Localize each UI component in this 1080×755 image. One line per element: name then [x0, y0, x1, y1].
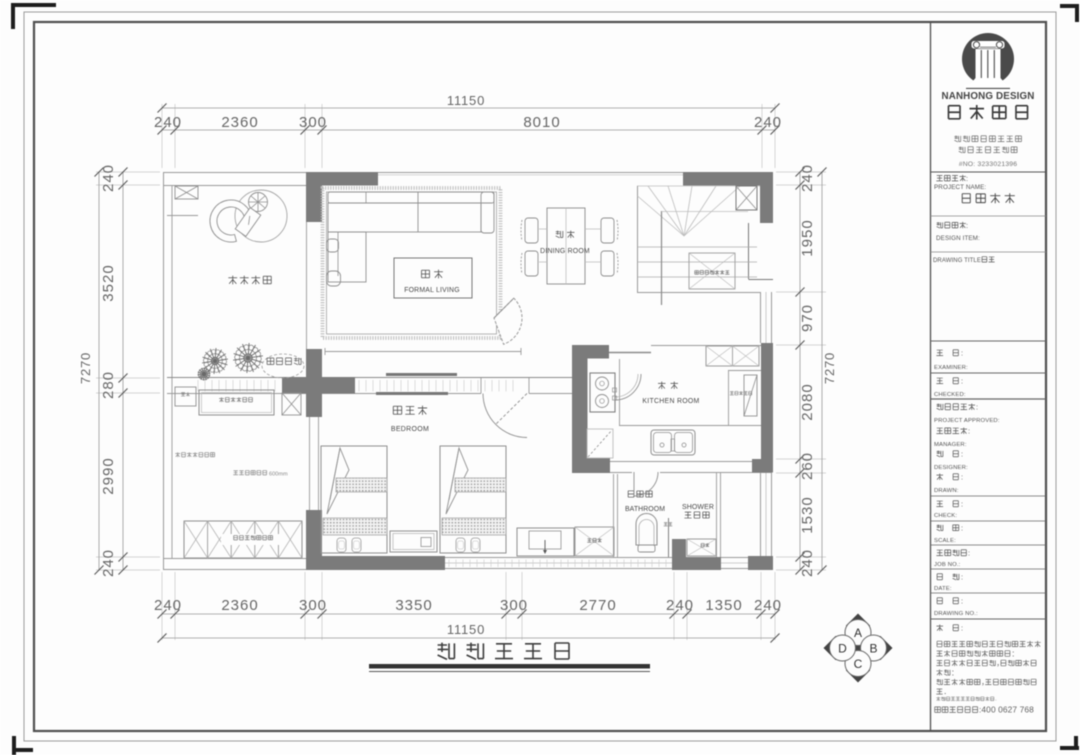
svg-text::: :	[961, 349, 963, 358]
svg-text:，: ，	[981, 680, 988, 687]
svg-text:240: 240	[799, 164, 816, 192]
svg-text:FORMAL LIVING: FORMAL LIVING	[404, 287, 460, 294]
svg-text:，: ，	[996, 661, 1003, 668]
svg-text::: :	[966, 221, 968, 230]
svg-text:EXAMINER:: EXAMINER:	[934, 365, 968, 371]
svg-text:240: 240	[100, 549, 117, 577]
svg-text:DRAWING TITLE: DRAWING TITLE	[933, 258, 981, 264]
svg-text:CHECK:: CHECK:	[934, 513, 957, 519]
svg-text:MANAGER:: MANAGER:	[934, 442, 967, 448]
svg-text:C: C	[854, 657, 863, 671]
svg-text:D: D	[838, 641, 847, 655]
svg-text:SCALE:: SCALE:	[934, 538, 956, 544]
svg-text:B: B	[869, 641, 877, 655]
svg-text:300: 300	[299, 597, 327, 614]
svg-text:DESIGN ITEM:: DESIGN ITEM:	[936, 235, 980, 242]
svg-text:A: A	[854, 626, 862, 640]
svg-text:240: 240	[154, 597, 182, 614]
svg-text:DINING ROOM: DINING ROOM	[540, 248, 590, 255]
svg-text:7270: 7270	[822, 352, 837, 384]
svg-text:240: 240	[100, 164, 117, 192]
svg-text:．: ．	[944, 689, 951, 696]
svg-text:：: ：	[951, 670, 958, 677]
svg-text:NANHONG DESIGN: NANHONG DESIGN	[942, 91, 1035, 102]
svg-text:8010: 8010	[523, 114, 560, 131]
svg-text:DESIGNER:: DESIGNER:	[934, 465, 968, 471]
svg-text::400 0627 768: :400 0627 768	[979, 705, 1034, 715]
svg-text:7270: 7270	[78, 352, 93, 384]
svg-text::: :	[961, 573, 963, 582]
svg-text:11150: 11150	[447, 93, 485, 108]
svg-text:300: 300	[500, 597, 528, 614]
svg-text:2360: 2360	[221, 114, 258, 131]
svg-text:2990: 2990	[100, 457, 117, 494]
svg-text:600mm: 600mm	[269, 471, 288, 477]
svg-text:DRAWN:: DRAWN:	[934, 488, 959, 494]
svg-text:CHECKED:: CHECKED:	[934, 392, 966, 398]
svg-text:240: 240	[754, 114, 782, 131]
svg-text::: :	[976, 403, 978, 412]
svg-text:DRAWING NO.:: DRAWING NO.:	[934, 611, 978, 617]
svg-text:BATHROOM: BATHROOM	[625, 506, 665, 513]
svg-text:240: 240	[754, 597, 782, 614]
svg-text:2770: 2770	[579, 597, 616, 614]
svg-text:DATE:: DATE:	[934, 586, 952, 592]
svg-text:280: 280	[100, 371, 117, 399]
svg-text:BEDROOM: BEDROOM	[391, 426, 429, 433]
svg-text:1530: 1530	[799, 496, 816, 533]
svg-text:1950: 1950	[799, 219, 816, 256]
svg-text::: :	[961, 450, 963, 459]
svg-text:2360: 2360	[221, 597, 258, 614]
svg-text:1350: 1350	[705, 597, 742, 614]
svg-text:240: 240	[799, 549, 816, 577]
svg-text::: :	[961, 473, 963, 482]
svg-text:240: 240	[154, 114, 182, 131]
svg-text:SHOWER: SHOWER	[682, 504, 714, 511]
svg-text:970: 970	[799, 304, 816, 332]
svg-text::: :	[961, 524, 963, 533]
svg-text:：: ：	[1012, 651, 1019, 658]
svg-text::: :	[968, 427, 970, 436]
svg-text:．: ．	[995, 697, 1000, 702]
svg-text:260: 260	[799, 452, 816, 480]
svg-text::: :	[968, 549, 970, 558]
svg-text::: :	[961, 500, 963, 509]
svg-text:2080: 2080	[799, 383, 816, 420]
svg-text:240: 240	[666, 597, 694, 614]
svg-text::: :	[961, 377, 963, 386]
svg-text:PROJECT APPROVED:: PROJECT APPROVED:	[934, 418, 1000, 424]
svg-text::: :	[966, 174, 968, 183]
svg-text:11150: 11150	[447, 622, 485, 637]
svg-text:#NO: 3233021396: #NO: 3233021396	[959, 161, 1018, 168]
svg-text::: :	[961, 624, 963, 633]
svg-text:3520: 3520	[100, 264, 117, 301]
svg-text:PROJECT NAME:: PROJECT NAME:	[934, 184, 986, 191]
svg-text::: :	[961, 597, 963, 606]
svg-text:JOB NO.:: JOB NO.:	[934, 562, 961, 568]
svg-text:3350: 3350	[395, 597, 432, 614]
svg-text:300: 300	[299, 114, 327, 131]
svg-text:KITCHEN ROOM: KITCHEN ROOM	[642, 398, 699, 405]
